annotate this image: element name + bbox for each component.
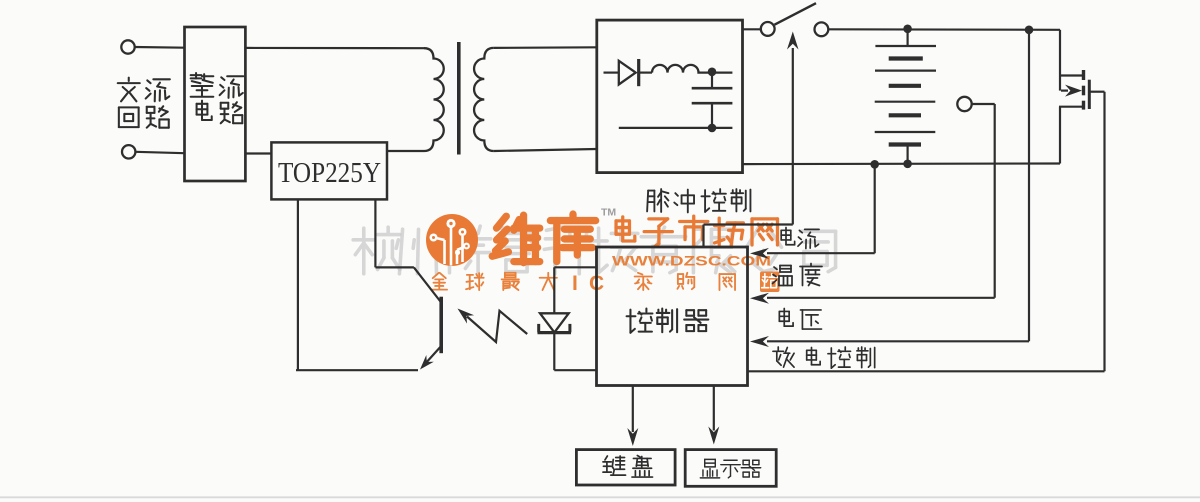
svg-text:TM: TM <box>601 207 616 219</box>
svg-text:I: I <box>572 272 578 295</box>
svg-text:TOP225Y: TOP225Y <box>278 158 381 189</box>
